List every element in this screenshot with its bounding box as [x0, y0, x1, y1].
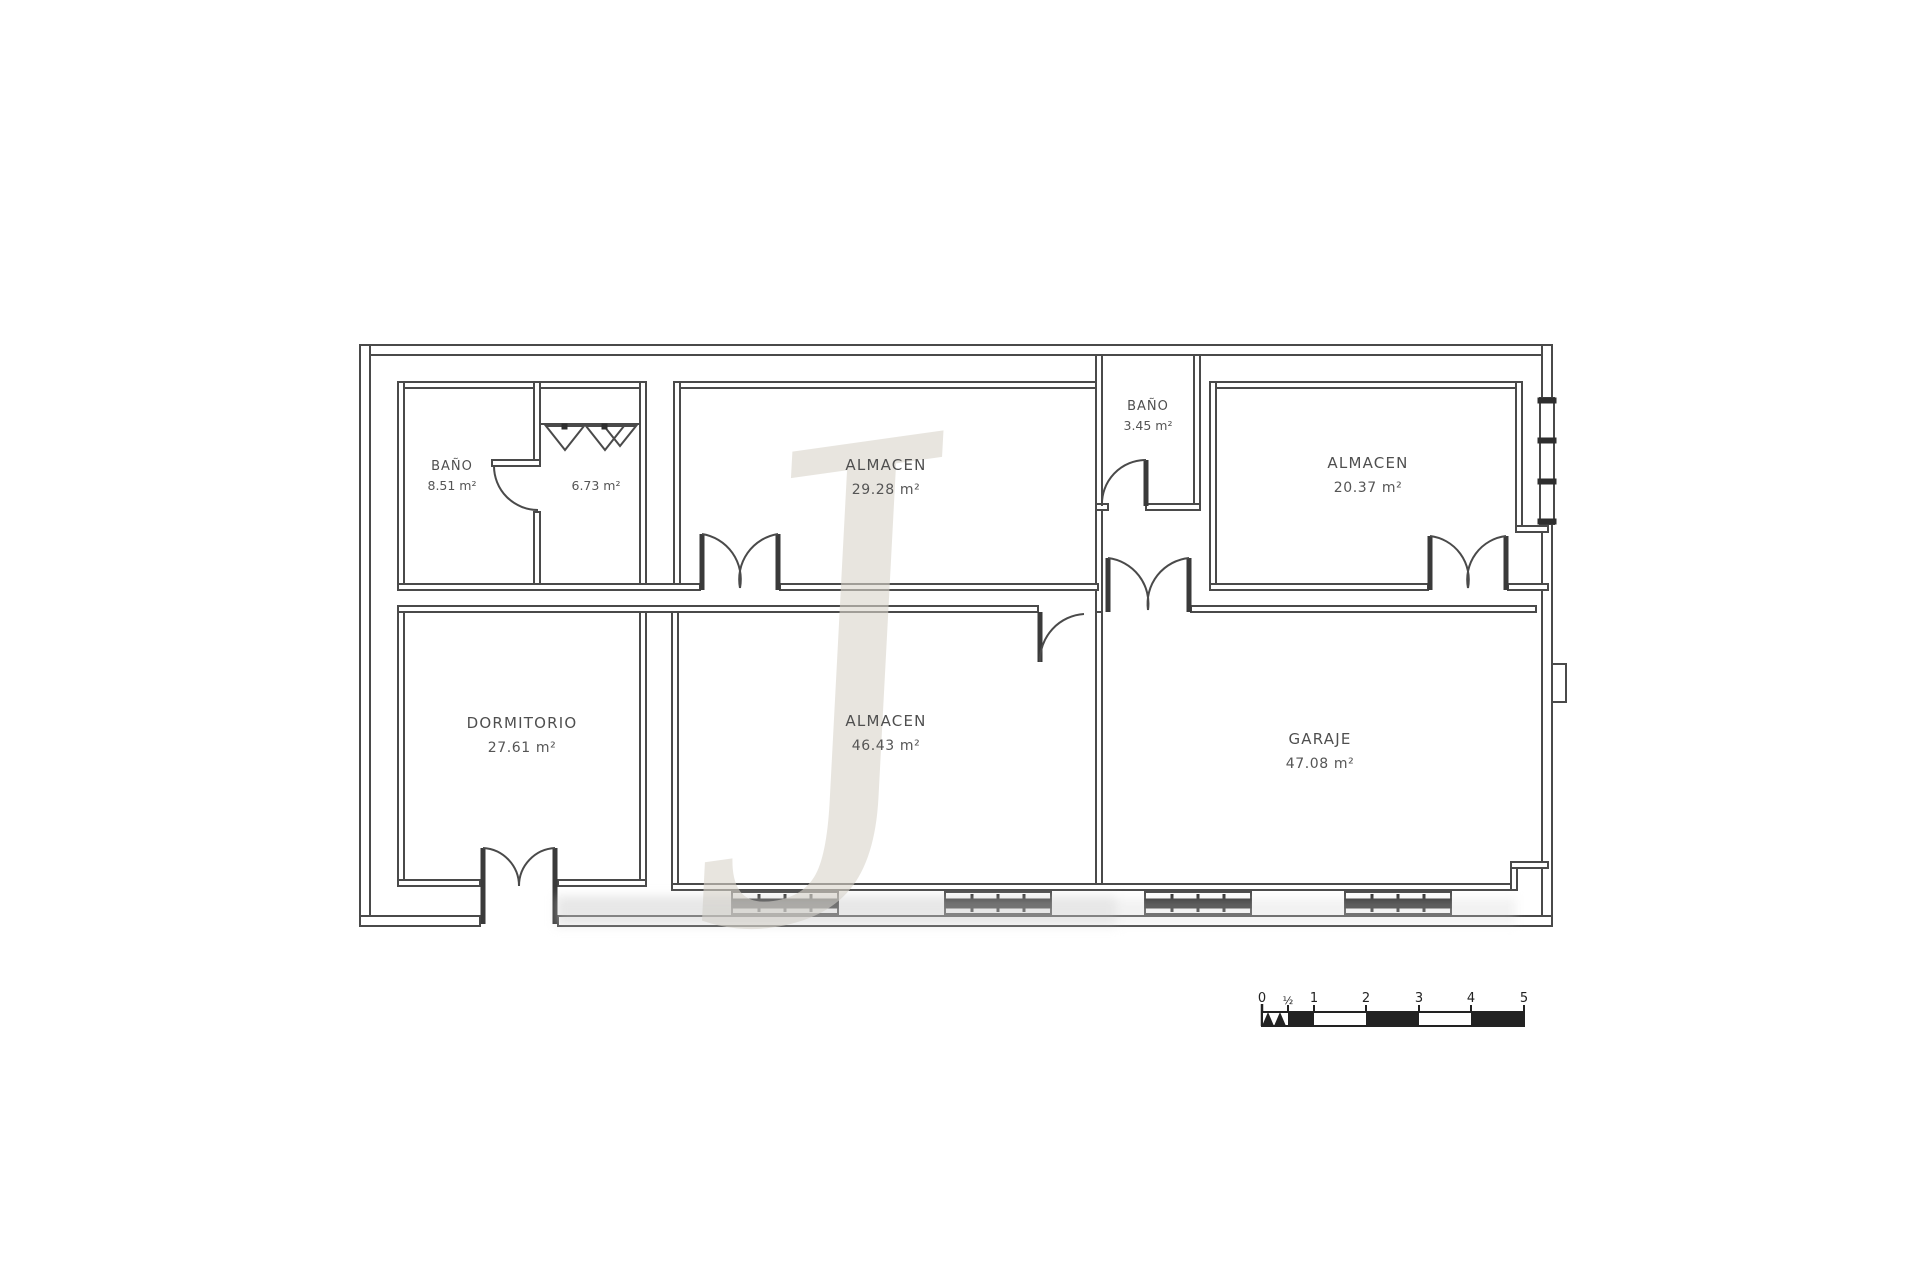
scale-bar: 0 ½ 1 2 3 4 5: [1258, 991, 1528, 1026]
middle-walls: [398, 534, 1536, 662]
room-area: 27.61 m²: [488, 740, 557, 756]
floor-plan-page: J BAÑO 8.51 m² 6.73 m² ALMACEN 29.28 m² …: [0, 0, 1920, 1280]
room-label: BAÑO: [1127, 398, 1169, 414]
room-area: 3.45 m²: [1124, 418, 1173, 433]
room-dormitorio-walls: [398, 612, 646, 924]
room-banio-2-walls: [1096, 355, 1200, 612]
closet-symbol: [540, 424, 640, 450]
entrance-double-door: [483, 848, 555, 924]
door-arc-banio-1: [494, 466, 538, 510]
room-area: 6.73 m²: [572, 478, 621, 493]
room-area: 29.28 m²: [852, 482, 921, 498]
watermark-blur-band: [556, 896, 1516, 926]
room-label: BAÑO: [431, 458, 473, 474]
door-arc-banio-2: [1102, 460, 1146, 506]
room-label: GARAJE: [1288, 730, 1351, 748]
room-area: 20.37 m²: [1334, 480, 1403, 496]
window-right-wall: [1538, 398, 1556, 524]
door-almacen-3: [1040, 612, 1084, 662]
scale-label-2: 2: [1362, 991, 1370, 1006]
scale-label-0: 0: [1258, 991, 1266, 1006]
room-label: ALMACEN: [845, 712, 926, 730]
room-area: 8.51 m²: [428, 478, 477, 493]
room-label: ALMACEN: [1327, 454, 1408, 472]
exterior-pillar: [1552, 664, 1566, 702]
floor-plan-drawing: J BAÑO 8.51 m² 6.73 m² ALMACEN 29.28 m² …: [0, 0, 1920, 1280]
room-label: ALMACEN: [845, 456, 926, 474]
watermark-letter: J: [623, 331, 1013, 951]
double-door-garaje: [1108, 558, 1189, 612]
double-door-almacen-2: [1430, 536, 1506, 590]
scale-label-1: 1: [1310, 991, 1318, 1006]
scale-label-3: 3: [1415, 991, 1423, 1006]
room-area: 46.43 m²: [852, 738, 921, 754]
scale-label-4: 4: [1467, 991, 1475, 1006]
scale-label-5: 5: [1520, 991, 1528, 1006]
room-area: 47.08 m²: [1286, 756, 1355, 772]
room-label: DORMITORIO: [467, 714, 578, 732]
